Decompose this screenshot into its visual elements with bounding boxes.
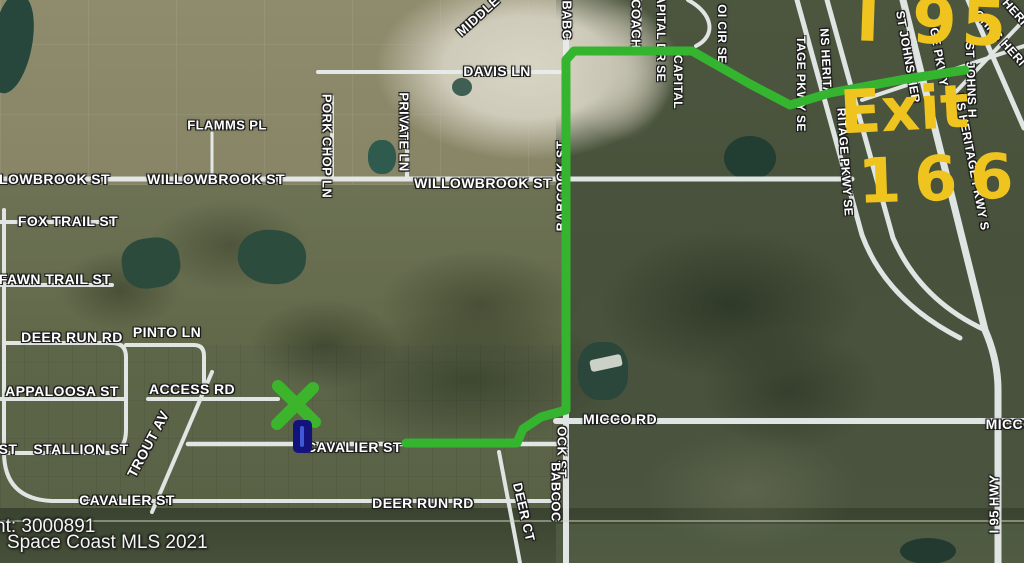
mls-attribution-text: Space Coast MLS 2021 bbox=[7, 533, 208, 552]
annotation-i95: I 95 bbox=[855, 0, 1012, 55]
satellite-map[interactable]: MIDDLEBABCDAVIS LNCOACHCAPITAL DR SECAPI… bbox=[0, 0, 1024, 563]
annotation-exit: Exit bbox=[839, 79, 971, 143]
property-marker bbox=[293, 420, 312, 453]
x-mark bbox=[277, 386, 315, 424]
annotation-exit-number: 166 bbox=[857, 147, 1024, 212]
